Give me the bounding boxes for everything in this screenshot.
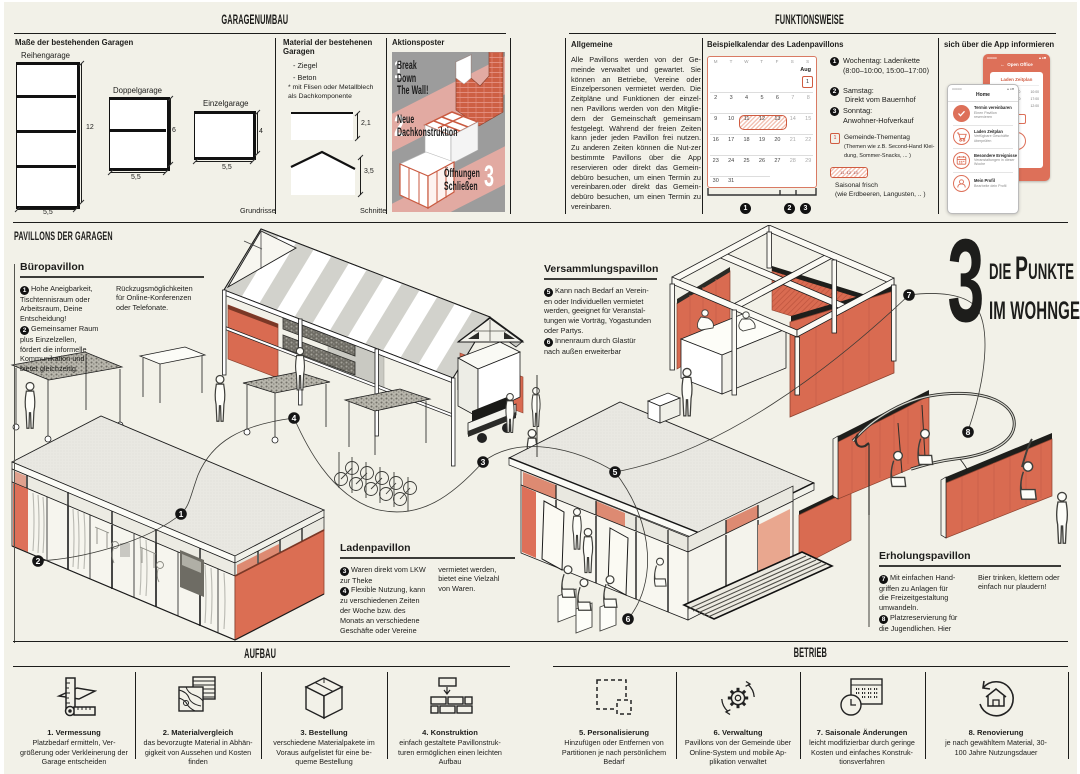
svg-text:3: 3 [481,457,486,467]
svg-text:2: 2 [36,556,41,566]
svg-text:8: 8 [966,427,971,437]
svg-text:6: 6 [626,614,631,624]
svg-text:5: 5 [613,467,618,477]
svg-text:1: 1 [179,509,184,519]
svg-text:4: 4 [292,413,297,423]
svg-text:7: 7 [907,290,912,300]
